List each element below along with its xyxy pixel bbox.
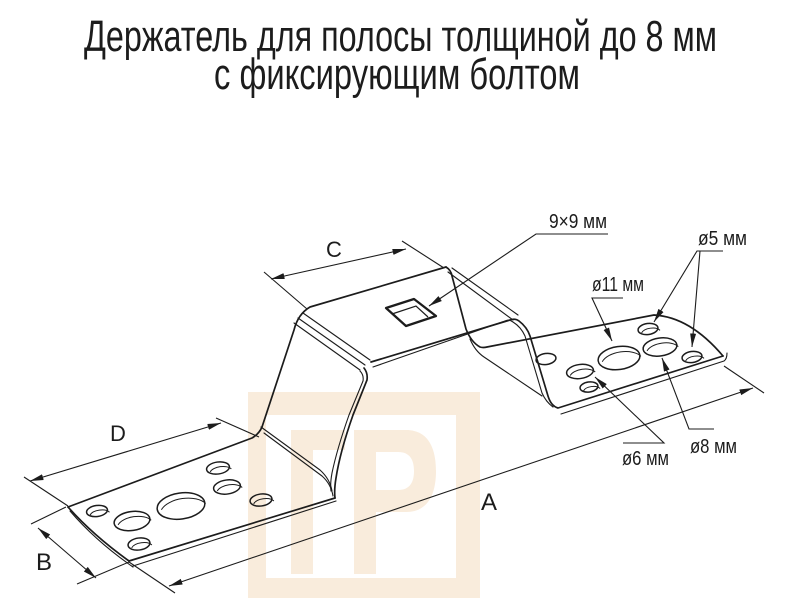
svg-text:D: D bbox=[110, 421, 126, 446]
svg-text:с фиксирующим болтом: с фиксирующим болтом bbox=[214, 50, 580, 99]
svg-text:9×9 мм: 9×9 мм bbox=[549, 211, 607, 233]
svg-text:ø8 мм: ø8 мм bbox=[690, 436, 737, 458]
svg-text:A: A bbox=[481, 489, 497, 516]
svg-text:B: B bbox=[36, 549, 52, 576]
svg-text:C: C bbox=[326, 237, 342, 262]
svg-text:ø11 мм: ø11 мм bbox=[592, 274, 644, 296]
svg-text:ø6 мм: ø6 мм bbox=[622, 448, 669, 470]
svg-text:ø5 мм: ø5 мм bbox=[698, 228, 747, 250]
